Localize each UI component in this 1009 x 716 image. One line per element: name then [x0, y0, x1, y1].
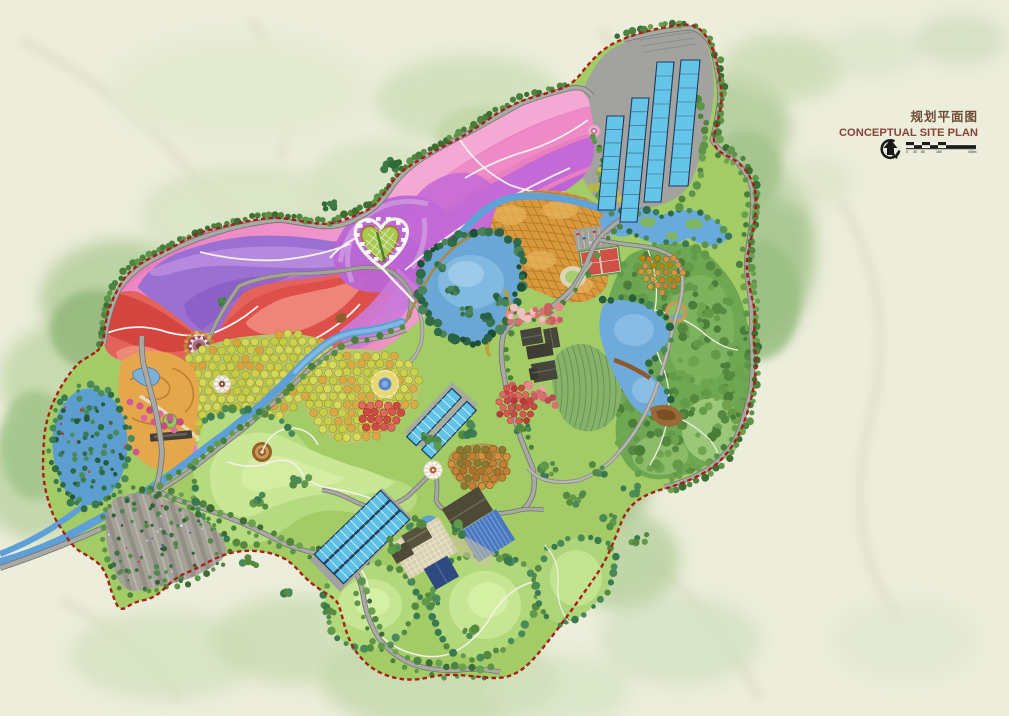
- svg-text:CONCEPTUAL SITE PLAN: CONCEPTUAL SITE PLAN: [839, 127, 978, 139]
- svg-text:N: N: [892, 151, 898, 161]
- svg-text:0: 0: [906, 150, 908, 154]
- svg-text:160: 160: [936, 150, 942, 154]
- svg-text:40: 40: [913, 150, 917, 154]
- svg-text:规划平面图: 规划平面图: [910, 109, 978, 124]
- svg-text:400m: 400m: [968, 150, 977, 154]
- svg-text:80: 80: [921, 150, 925, 154]
